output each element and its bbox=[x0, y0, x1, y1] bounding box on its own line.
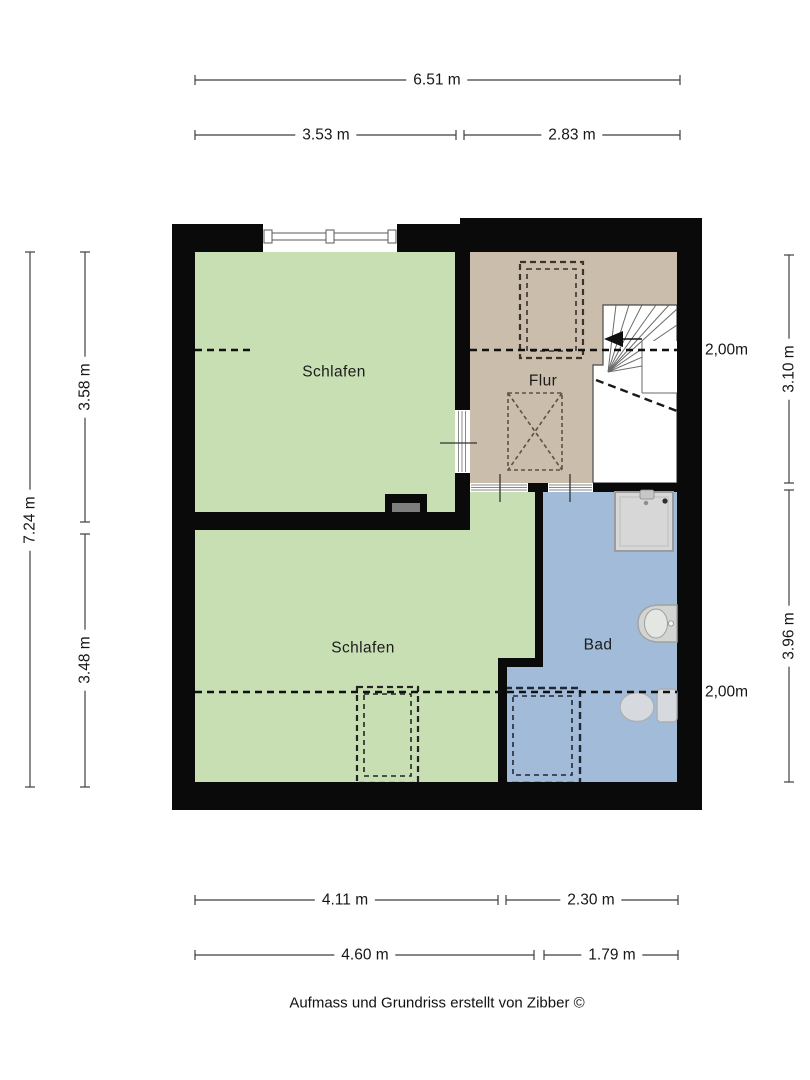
room-label-bedroom-bottom: Schlafen bbox=[331, 640, 395, 656]
wall-under-stairs bbox=[593, 483, 677, 492]
wall-hallway-upper bbox=[455, 252, 470, 410]
footer-credit: Aufmass und Grundriss erstellt von Zibbe… bbox=[289, 996, 584, 1011]
dimension-label-left-lower: 3.48 m bbox=[76, 629, 94, 690]
sink bbox=[638, 605, 677, 642]
wall-right bbox=[677, 218, 702, 810]
bedroom-top-floor bbox=[195, 252, 455, 512]
stairs-landing bbox=[642, 341, 677, 393]
dimension-label-top-total: 6.51 m bbox=[406, 71, 467, 89]
wall-bottom bbox=[172, 782, 702, 810]
shower bbox=[615, 490, 673, 551]
dimension-label-bottom-row2-left: 4.60 m bbox=[334, 946, 395, 964]
floorplan-drawing bbox=[0, 0, 810, 1080]
bedroom-bottom-floor bbox=[195, 492, 535, 782]
dimension-label-right-upper: 3.10 m bbox=[780, 338, 798, 399]
wall-bedroom-divider bbox=[172, 512, 470, 530]
chimney bbox=[385, 494, 427, 513]
room-label-hallway: Flur bbox=[529, 373, 557, 389]
wall-bedroom-bathroom-upper bbox=[535, 492, 543, 658]
stairs bbox=[593, 305, 677, 483]
window bbox=[263, 224, 397, 252]
wall-bedroom-bathroom-lower bbox=[498, 667, 507, 782]
dimension-label-left-upper: 3.58 m bbox=[76, 356, 94, 417]
room-label-bedroom-top: Schlafen bbox=[302, 364, 366, 380]
height-marker-bathroom: 2,00m bbox=[705, 684, 748, 700]
wall-top-right bbox=[460, 218, 702, 252]
dimension-label-left-total: 7.24 m bbox=[21, 489, 39, 550]
dimension-label-right-lower: 3.96 m bbox=[780, 605, 798, 666]
wall-hallway-bottom-stub bbox=[528, 483, 548, 492]
dimension-label-top-left: 3.53 m bbox=[295, 126, 356, 144]
dimension-label-top-right: 2.83 m bbox=[541, 126, 602, 144]
wall-hallway-lower bbox=[455, 473, 470, 530]
dimension-label-bottom-row2-right: 1.79 m bbox=[581, 946, 642, 964]
room-label-bathroom: Bad bbox=[584, 637, 613, 653]
floorplan-page: 6.51 m 3.53 m 2.83 m 7.24 m 3.58 m 3.48 … bbox=[0, 0, 810, 1080]
dimension-label-bottom-row1-right: 2.30 m bbox=[560, 891, 621, 909]
wall-step bbox=[498, 658, 543, 667]
dimension-label-bottom-row1-left: 4.11 m bbox=[315, 891, 375, 909]
height-marker-hallway: 2,00m bbox=[705, 342, 748, 358]
